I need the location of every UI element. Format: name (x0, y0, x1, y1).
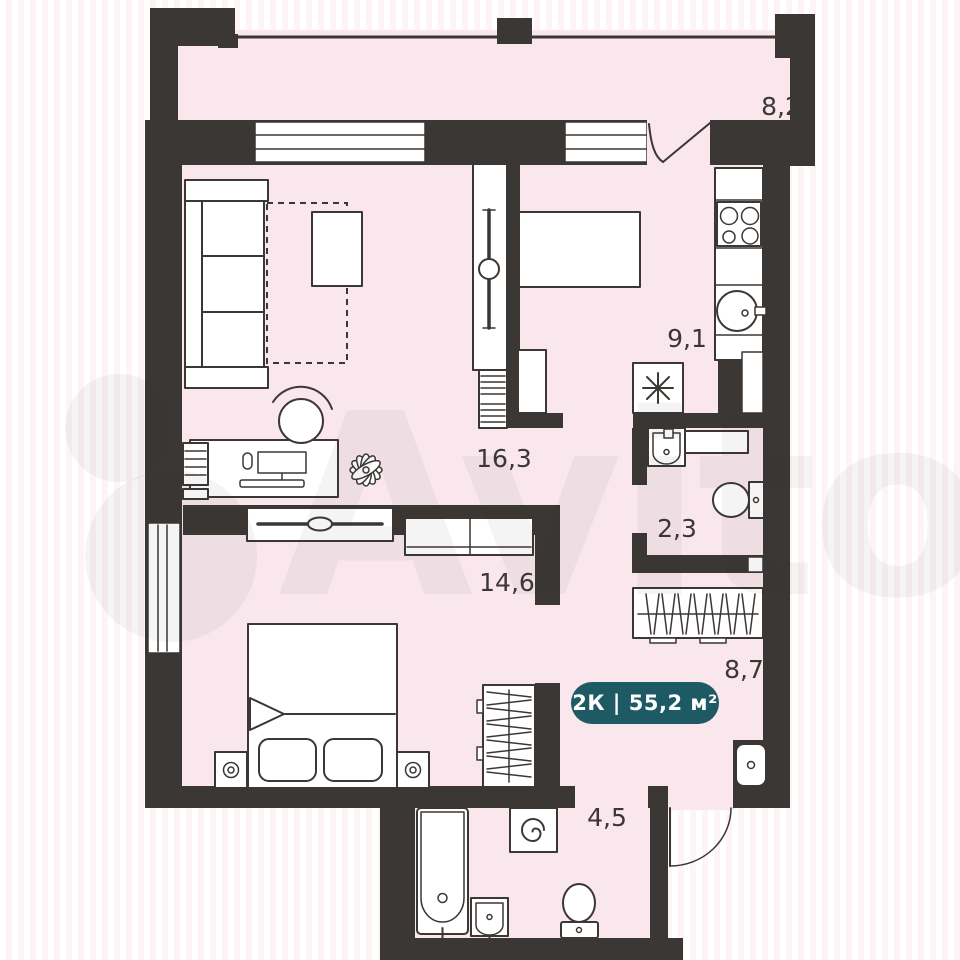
nightstand-left (215, 752, 247, 788)
room-label-bathroom: 4,5 (587, 803, 627, 832)
entry-floor (665, 786, 735, 810)
balcony-door (647, 120, 710, 165)
room-label-balcony: 8,2 (761, 92, 801, 121)
stove (717, 202, 761, 246)
bathtub (417, 808, 468, 954)
floor-plan-canvas: 8,2 9,1 16,3 2,3 14,6 8,7 4,5 2К | 55,2 … (0, 0, 960, 960)
watermark-dot-small (65, 374, 173, 482)
watermark-text: Avito (278, 361, 960, 654)
watermark-dot-large (85, 470, 257, 642)
balcony-floor (175, 30, 790, 125)
dining-table (519, 212, 640, 287)
washing-machine (510, 808, 557, 852)
room-label-kitchen: 9,1 (667, 324, 707, 353)
entry-fixture (736, 744, 766, 786)
bathroom-toilet (561, 884, 598, 938)
area-badge-label: 2К | 55,2 м² (572, 691, 718, 716)
balcony-window-right (565, 122, 647, 162)
sofa (185, 180, 268, 388)
coffee-table (312, 212, 362, 286)
area-badge: 2К | 55,2 м² (571, 682, 719, 724)
room-label-hallway: 8,7 (724, 655, 764, 684)
bedroom-closet (477, 685, 535, 787)
nightstand-right (397, 752, 429, 788)
tv-stand (473, 164, 507, 370)
floor-plan: 8,2 9,1 16,3 2,3 14,6 8,7 4,5 2К | 55,2 … (0, 0, 960, 960)
balcony-window-left (255, 122, 425, 162)
